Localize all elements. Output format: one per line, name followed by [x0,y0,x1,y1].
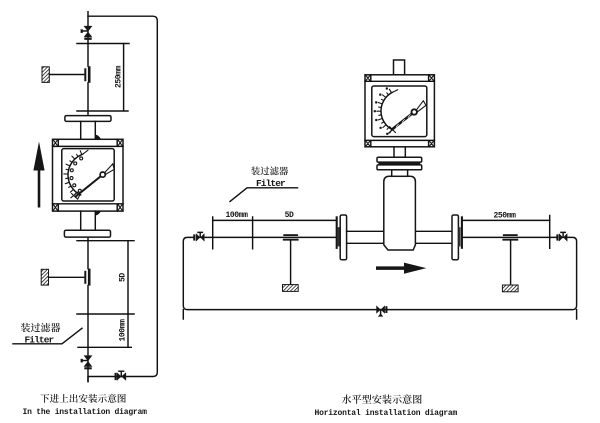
svg-text:100mm: 100mm [119,319,128,342]
svg-text:250mm: 250mm [493,211,516,220]
svg-text:In the installation diagram: In the installation diagram [23,408,148,417]
svg-text:100mm: 100mm [225,211,248,220]
svg-text:5D: 5D [285,211,294,220]
svg-text:250mm: 250mm [114,65,123,88]
svg-text:Horizontal installation diagra: Horizontal installation diagram [315,409,458,418]
svg-text:5D: 5D [119,273,128,282]
